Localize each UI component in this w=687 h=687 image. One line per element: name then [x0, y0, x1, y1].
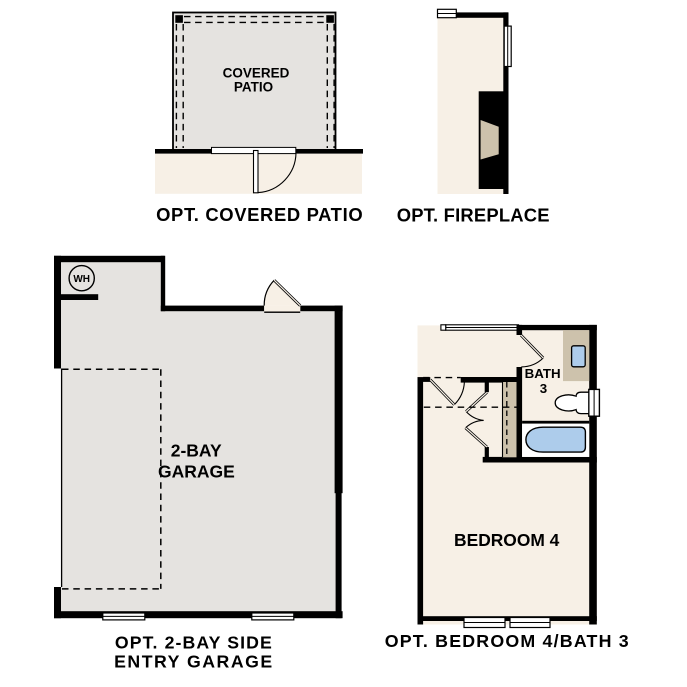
svg-text:OPT. FIREPLACE: OPT. FIREPLACE: [397, 205, 550, 226]
svg-text:3: 3: [540, 381, 547, 396]
svg-text:PATIO: PATIO: [234, 80, 273, 95]
svg-text:WH: WH: [73, 274, 90, 285]
svg-text:GARAGE: GARAGE: [158, 462, 235, 482]
svg-text:COVERED: COVERED: [223, 66, 290, 81]
svg-text:BEDROOM 4: BEDROOM 4: [454, 530, 560, 550]
svg-text:OPT. BEDROOM 4/BATH 3: OPT. BEDROOM 4/BATH 3: [385, 631, 630, 651]
svg-text:OPT. COVERED PATIO: OPT. COVERED PATIO: [156, 204, 363, 225]
svg-text:OPT. 2-BAY SIDE: OPT. 2-BAY SIDE: [115, 632, 273, 652]
svg-text:ENTRY GARAGE: ENTRY GARAGE: [114, 652, 274, 672]
svg-text:2-BAY: 2-BAY: [171, 440, 222, 460]
svg-text:BATH: BATH: [525, 366, 561, 381]
